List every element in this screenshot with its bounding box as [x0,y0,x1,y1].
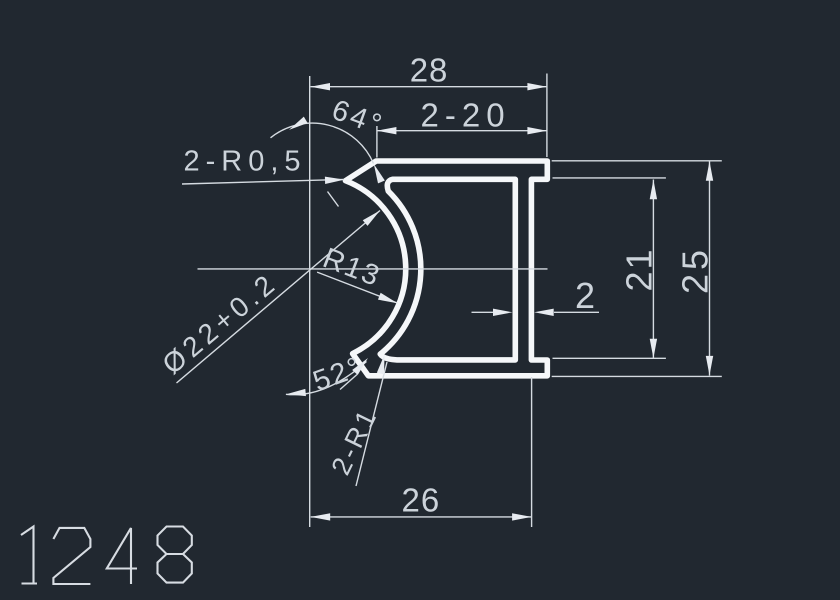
svg-text:26: 26 [402,482,441,519]
svg-text:25: 25 [675,246,716,294]
svg-text:2: 2 [575,275,595,316]
svg-text:21: 21 [619,247,660,291]
svg-text:2-20: 2-20 [421,97,511,134]
svg-text:28: 28 [410,52,449,89]
svg-text:2-R0,5: 2-R0,5 [184,145,307,177]
